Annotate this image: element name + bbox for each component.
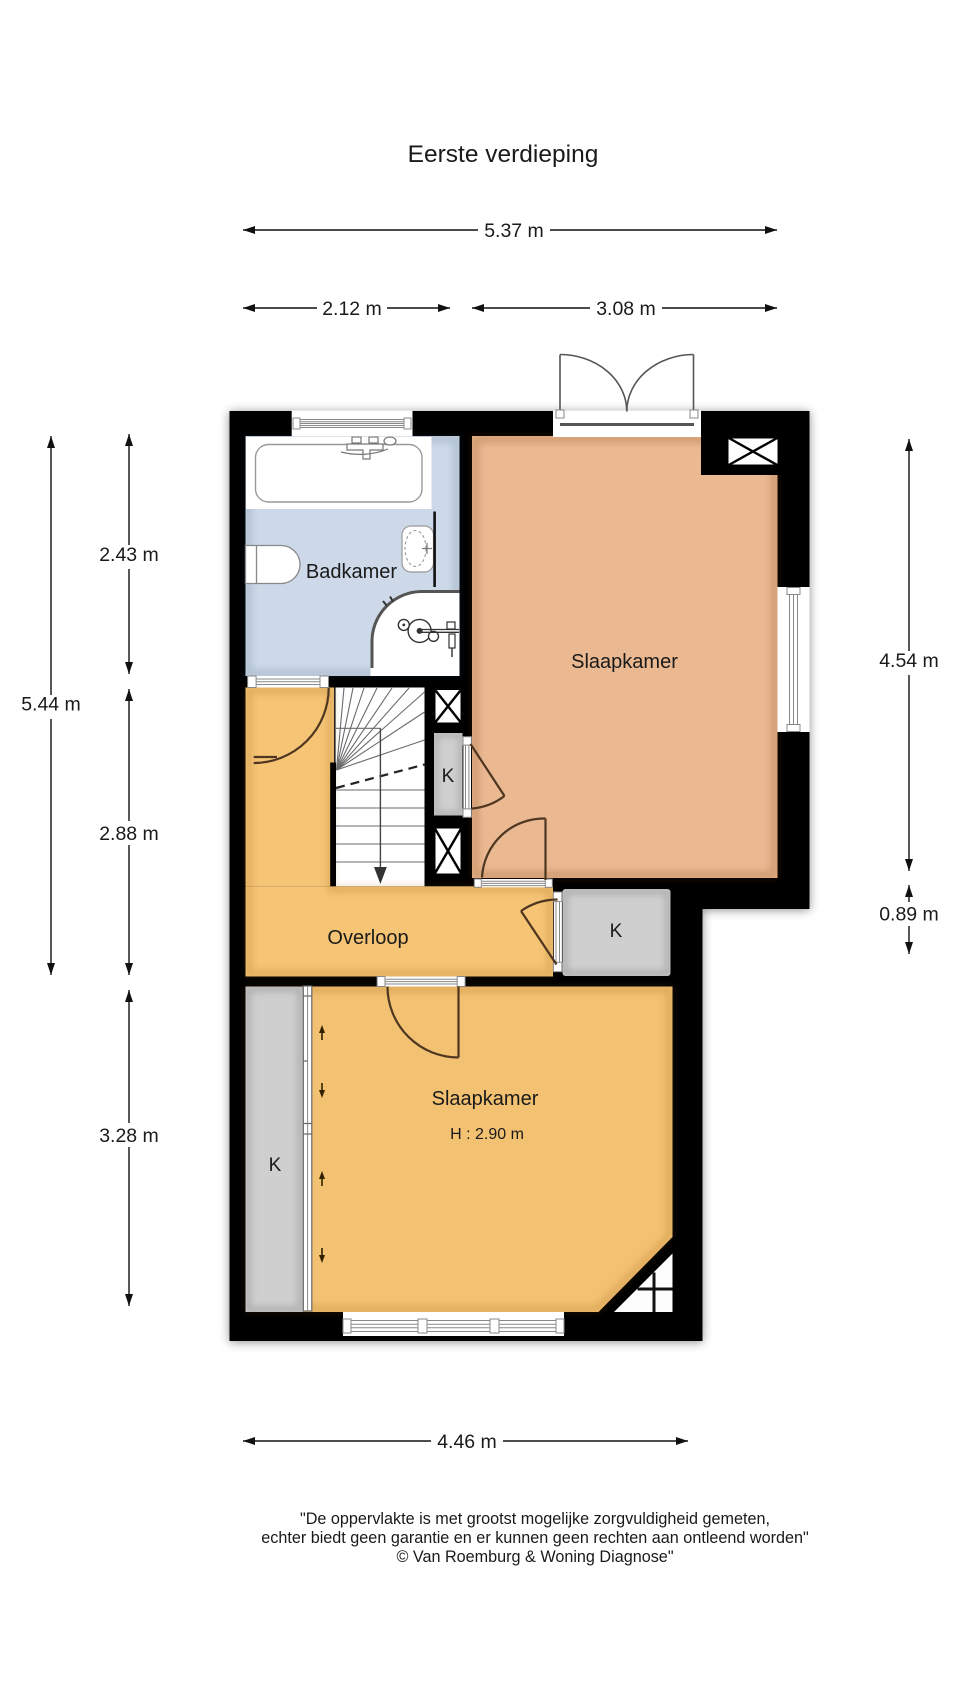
svg-text:0.89 m: 0.89 m xyxy=(879,904,939,926)
svg-text:© Van Roemburg & Woning Diagno: © Van Roemburg & Woning Diagnose" xyxy=(396,1548,673,1566)
svg-text:4.46 m: 4.46 m xyxy=(437,1431,497,1453)
svg-text:Overloop: Overloop xyxy=(327,927,408,949)
svg-text:3.08 m: 3.08 m xyxy=(596,298,656,320)
svg-text:Slaapkamer: Slaapkamer xyxy=(571,651,678,673)
svg-text:5.44 m: 5.44 m xyxy=(21,694,81,716)
svg-text:K: K xyxy=(610,921,623,942)
svg-text:"De oppervlakte is met grootst: "De oppervlakte is met grootst mogelijke… xyxy=(300,1510,770,1528)
svg-text:K: K xyxy=(442,766,455,787)
svg-text:Badkamer: Badkamer xyxy=(306,561,397,583)
svg-text:2.43 m: 2.43 m xyxy=(99,544,159,566)
svg-text:5.37 m: 5.37 m xyxy=(484,220,544,242)
svg-text:3.28 m: 3.28 m xyxy=(99,1125,159,1147)
svg-text:K: K xyxy=(269,1155,282,1176)
svg-text:Slaapkamer: Slaapkamer xyxy=(432,1088,539,1110)
svg-text:echter biedt geen garantie en: echter biedt geen garantie en er kunnen … xyxy=(261,1529,809,1547)
svg-text:2.12 m: 2.12 m xyxy=(322,298,382,320)
svg-text:4.54 m: 4.54 m xyxy=(879,650,939,672)
svg-text:H : 2.90 m: H : 2.90 m xyxy=(450,1126,524,1143)
svg-text:2.88 m: 2.88 m xyxy=(99,823,159,845)
svg-text:Eerste verdieping: Eerste verdieping xyxy=(408,141,599,168)
